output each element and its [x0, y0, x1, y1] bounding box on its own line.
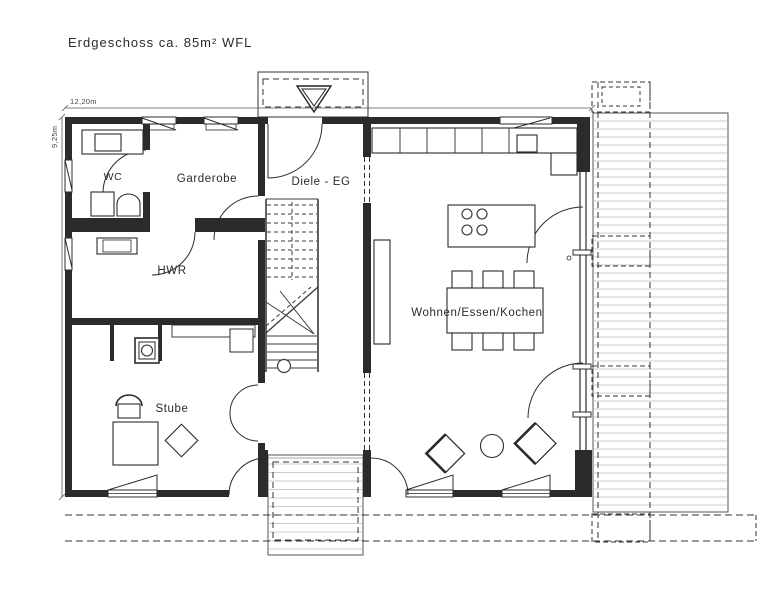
window-left-hwr — [65, 238, 72, 270]
lounge-chair-diamond — [426, 434, 464, 472]
window-left-wc — [65, 160, 72, 192]
side-table-round — [481, 435, 504, 458]
toilet-cistern — [91, 192, 114, 216]
window-bottom-living-2 — [502, 475, 550, 497]
stube-chair-diamond — [165, 424, 198, 457]
room-label-wohnen: Wohnen/Essen/Kochen — [411, 307, 542, 319]
room-label-stube: Stube — [155, 403, 188, 415]
wood-stove — [135, 338, 159, 363]
armchair — [116, 395, 142, 418]
stair-lower-treads — [267, 336, 317, 368]
room-label-diele: Diele - EG — [291, 176, 350, 188]
stair-newel-circle — [278, 360, 291, 373]
staircase — [266, 199, 318, 373]
terrace-deck — [593, 113, 728, 512]
plan-title: Erdgeschoss ca. 85m² WFL — [68, 35, 252, 50]
wc-sink — [95, 134, 121, 151]
room-label-garderobe: Garderobe — [177, 173, 237, 185]
toilet-bowl — [117, 194, 140, 216]
floorplan-canvas: Erdgeschoss ca. 85m² WFL 12,20m 9,25m WC… — [0, 0, 772, 600]
dining-chair — [483, 271, 503, 288]
dining-chair — [483, 333, 503, 350]
stube-double-door-leaf-1 — [230, 385, 258, 413]
sideboard-box — [230, 329, 253, 352]
stube-table — [113, 422, 158, 465]
door-handle-dot — [567, 256, 571, 260]
cooktop-burner — [462, 225, 472, 235]
porch-deck — [268, 455, 363, 555]
stube-furniture — [113, 325, 255, 465]
kitchen-tall-unit — [374, 240, 390, 344]
window-bottom-living-1 — [406, 475, 453, 497]
lounge-chair-diamond — [515, 423, 556, 464]
dining-chair — [514, 333, 534, 350]
dining-chair — [514, 271, 534, 288]
kitchen-island — [448, 205, 535, 247]
cooktop-burner — [462, 209, 472, 219]
floor-plan-page: { "title": "Erdgeschoss ca. 85m² WFL", "… — [0, 0, 772, 600]
dining-chair — [452, 333, 472, 350]
entrance-canopy — [258, 72, 368, 117]
cooktop-burner — [477, 209, 487, 219]
window-bottom-stube — [108, 475, 157, 497]
room-label-hwr: HWR — [157, 265, 186, 277]
living-furniture — [426, 423, 556, 473]
dining-chair — [452, 271, 472, 288]
stair-cut-line — [266, 287, 318, 333]
window-top-2 — [204, 117, 238, 130]
hwr-washer — [97, 238, 137, 254]
porch-door-right — [371, 458, 408, 495]
kitchen-sink — [517, 135, 537, 152]
room-label-wc: WC — [104, 171, 123, 183]
overhang-post — [592, 82, 650, 112]
kitchen-counter-return — [551, 153, 577, 175]
front-door — [268, 124, 322, 178]
right-glazed-wall — [567, 172, 591, 450]
terrace-door-lower — [528, 363, 583, 418]
overhang-post — [592, 514, 650, 542]
kitchen-counter — [372, 128, 577, 153]
dimension-height-label: 9,25m — [50, 126, 59, 148]
cooktop-burner — [477, 225, 487, 235]
dimension-width-label: 12,20m — [70, 97, 97, 106]
stube-double-door-leaf-2 — [230, 413, 258, 441]
